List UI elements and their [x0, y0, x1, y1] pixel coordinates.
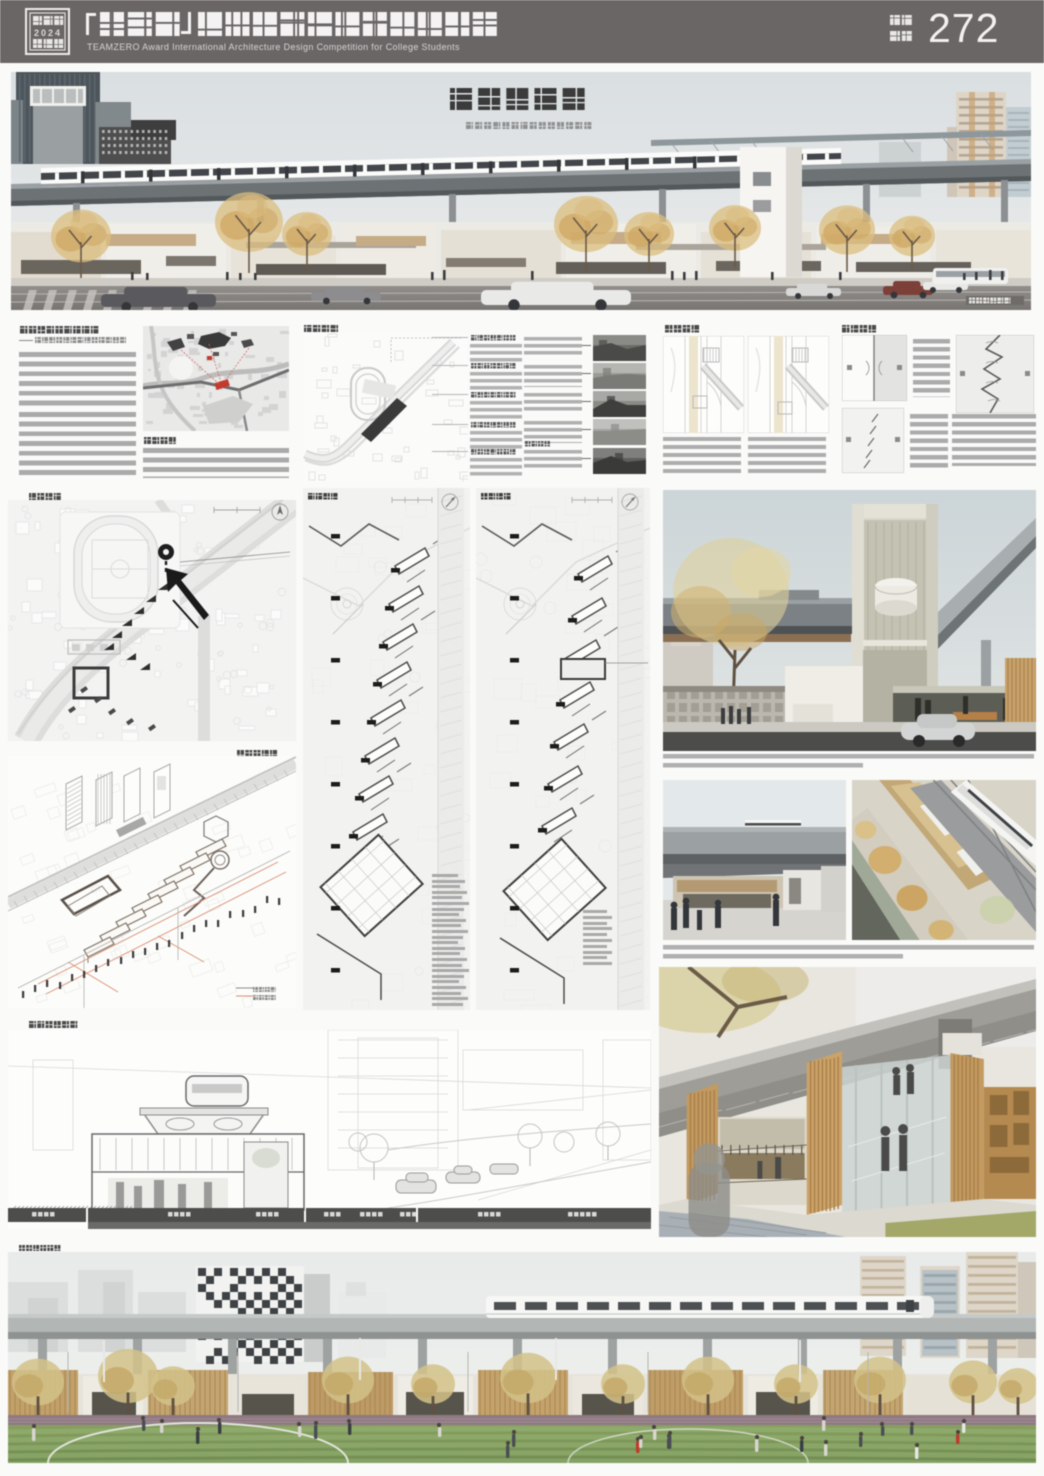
svg-text:2024: 2024 [34, 28, 62, 38]
